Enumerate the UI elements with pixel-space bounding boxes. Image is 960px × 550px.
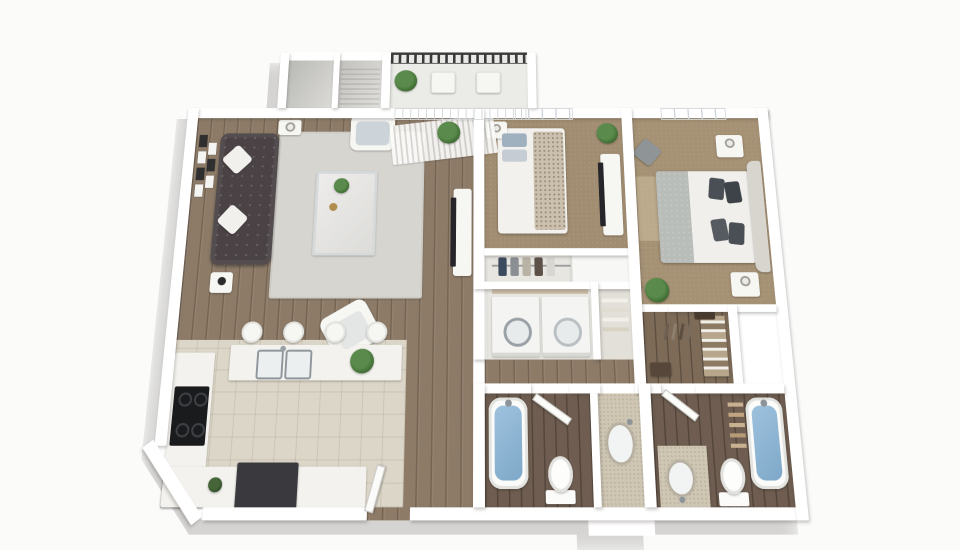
living-plant (437, 122, 460, 144)
table-lamp (740, 276, 751, 286)
linen-shelves (601, 299, 627, 303)
hanging-clothes (546, 257, 555, 276)
bed-1-pillow (502, 133, 527, 147)
wall-art (197, 151, 206, 163)
balcony-chair-2 (476, 72, 500, 93)
hanging-clothes (522, 257, 531, 276)
washer-door (503, 318, 532, 347)
wall-art (196, 168, 205, 180)
dryer-door (553, 318, 582, 347)
towel-ladder (727, 403, 743, 407)
faucet (627, 419, 633, 425)
kitchen-island (228, 345, 402, 381)
louver-door (340, 65, 381, 104)
hanging-clothes (510, 257, 519, 276)
faucet (505, 400, 512, 407)
wall-living-bed1 (473, 108, 484, 359)
wall-art (194, 184, 203, 196)
kitchen-sink (255, 350, 284, 380)
bed-2-pillow (708, 177, 725, 200)
toilet-1 (548, 456, 574, 492)
faucet (760, 400, 767, 407)
faucet (679, 497, 685, 503)
armchair-cushion (355, 122, 389, 146)
bed-1-throw (533, 132, 566, 230)
bedroom-1-plant (596, 123, 618, 143)
kitchen-sink (284, 350, 312, 380)
wall-bath2-top-b (695, 383, 784, 393)
bed-1-pillow (502, 150, 527, 162)
dishwasher (234, 463, 299, 510)
walkin-shelves (700, 316, 729, 377)
walkin-bench (650, 363, 672, 377)
sliding-door-balcony (394, 108, 526, 120)
bedroom-2-plant (644, 278, 670, 303)
table-lamp (724, 138, 735, 147)
window-bedroom-1 (515, 108, 573, 120)
plan-scene (145, 52, 810, 535)
room-hallway (485, 360, 639, 384)
wall-laundry-top (473, 282, 641, 290)
wall-bed2-bottom (668, 304, 777, 312)
plan-stage (168, 10, 788, 534)
wall-balcony-right (527, 52, 537, 108)
wall-art (206, 159, 215, 171)
wall-bath1-top-b (569, 383, 600, 393)
wall-storage-balcony (381, 52, 391, 108)
floor-plan-render (0, 0, 960, 540)
laundry-shelf (492, 289, 588, 294)
hanging-clothes (498, 257, 506, 276)
wall-bath1-left (473, 383, 485, 507)
bed-2-blanket (656, 171, 695, 263)
bed-2-pillow (729, 222, 745, 245)
wall-bottom-right (410, 507, 797, 520)
wall-art (205, 176, 214, 188)
wall-art (199, 135, 208, 147)
window-bedroom-2 (660, 108, 726, 120)
hanging-clothes (534, 257, 543, 276)
balcony-chair-1 (431, 72, 456, 93)
balcony-railing (391, 52, 527, 63)
wall-art (208, 143, 217, 155)
bathtub-1-water (494, 406, 522, 481)
tv (450, 198, 456, 267)
storage-closet-left (286, 60, 334, 108)
closet-slider-panel (570, 252, 631, 284)
wall-closet1-back (484, 248, 628, 255)
wall-bottom-left (202, 507, 367, 520)
